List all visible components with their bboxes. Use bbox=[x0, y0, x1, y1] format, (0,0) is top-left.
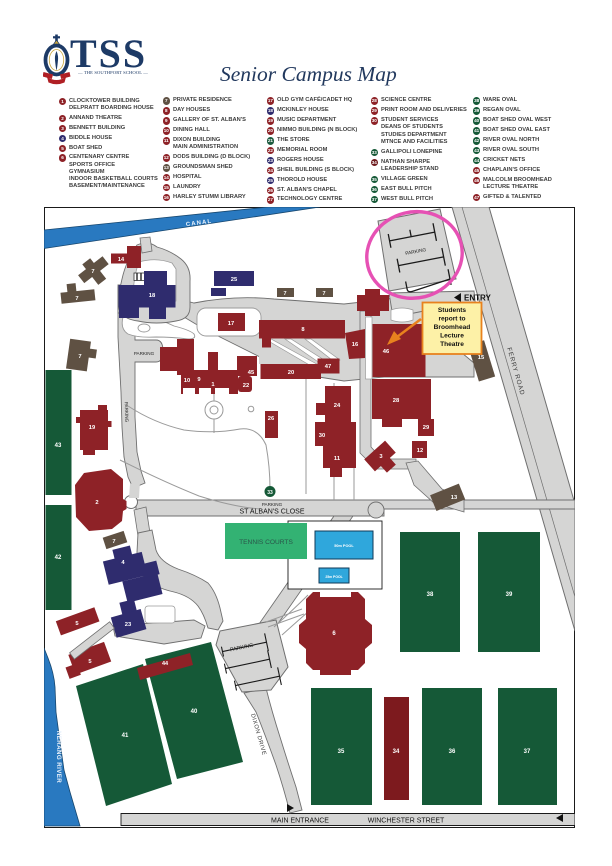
svg-text:28: 28 bbox=[393, 398, 400, 404]
svg-text:41: 41 bbox=[122, 733, 129, 739]
svg-text:18: 18 bbox=[149, 293, 156, 299]
svg-text:ENTRY: ENTRY bbox=[464, 294, 491, 303]
svg-text:22: 22 bbox=[243, 383, 249, 389]
svg-text:PARKING: PARKING bbox=[134, 351, 155, 356]
svg-text:2: 2 bbox=[95, 500, 98, 506]
svg-text:12: 12 bbox=[417, 448, 423, 454]
svg-text:ST ALBAN'S CLOSE: ST ALBAN'S CLOSE bbox=[239, 509, 304, 516]
svg-text:7: 7 bbox=[283, 291, 286, 297]
svg-text:7: 7 bbox=[322, 291, 325, 297]
svg-text:23: 23 bbox=[125, 622, 132, 628]
svg-text:14: 14 bbox=[118, 257, 125, 263]
svg-text:42: 42 bbox=[55, 555, 62, 561]
svg-text:36: 36 bbox=[449, 749, 456, 755]
svg-text:47: 47 bbox=[325, 364, 331, 370]
svg-text:13: 13 bbox=[451, 495, 458, 501]
svg-text:39: 39 bbox=[506, 592, 513, 598]
svg-text:26: 26 bbox=[268, 416, 275, 422]
svg-text:43: 43 bbox=[55, 443, 62, 449]
svg-text:Lecture: Lecture bbox=[440, 333, 464, 340]
svg-text:40: 40 bbox=[191, 709, 198, 715]
svg-text:46: 46 bbox=[383, 349, 390, 355]
svg-text:NERANG RIVER: NERANG RIVER bbox=[55, 731, 62, 783]
svg-text:Students: Students bbox=[438, 307, 467, 314]
svg-text:WINCHESTER STREET: WINCHESTER STREET bbox=[368, 818, 445, 825]
svg-text:25: 25 bbox=[231, 277, 238, 283]
svg-text:45: 45 bbox=[248, 370, 255, 376]
svg-text:7: 7 bbox=[91, 269, 94, 275]
svg-text:37: 37 bbox=[524, 749, 531, 755]
svg-text:30: 30 bbox=[319, 433, 325, 439]
svg-text:50m POOL: 50m POOL bbox=[334, 544, 354, 548]
svg-text:11: 11 bbox=[334, 456, 341, 462]
svg-text:report to: report to bbox=[438, 316, 465, 323]
svg-text:24: 24 bbox=[334, 403, 341, 409]
svg-text:20: 20 bbox=[288, 370, 294, 376]
svg-text:7: 7 bbox=[75, 296, 78, 302]
svg-text:38: 38 bbox=[427, 592, 434, 598]
svg-text:TENNIS COURTS: TENNIS COURTS bbox=[239, 539, 293, 546]
svg-text:7: 7 bbox=[78, 354, 81, 360]
svg-text:34: 34 bbox=[393, 749, 400, 755]
svg-text:Theatre: Theatre bbox=[440, 341, 464, 348]
svg-text:Broomhead: Broomhead bbox=[434, 324, 471, 331]
svg-text:25m POOL: 25m POOL bbox=[325, 575, 342, 579]
svg-text:17: 17 bbox=[228, 321, 234, 327]
svg-text:16: 16 bbox=[352, 342, 359, 348]
svg-text:10: 10 bbox=[184, 378, 190, 384]
svg-text:15: 15 bbox=[478, 355, 485, 361]
svg-text:19: 19 bbox=[89, 425, 96, 431]
svg-text:29: 29 bbox=[423, 425, 430, 431]
svg-text:PARKING: PARKING bbox=[124, 402, 130, 423]
svg-text:PARKING: PARKING bbox=[262, 502, 283, 507]
svg-text:35: 35 bbox=[338, 749, 345, 755]
svg-text:33: 33 bbox=[267, 490, 273, 496]
svg-text:44: 44 bbox=[162, 661, 169, 667]
svg-text:MAIN ENTRANCE: MAIN ENTRANCE bbox=[271, 818, 329, 825]
svg-text:7: 7 bbox=[112, 539, 115, 545]
